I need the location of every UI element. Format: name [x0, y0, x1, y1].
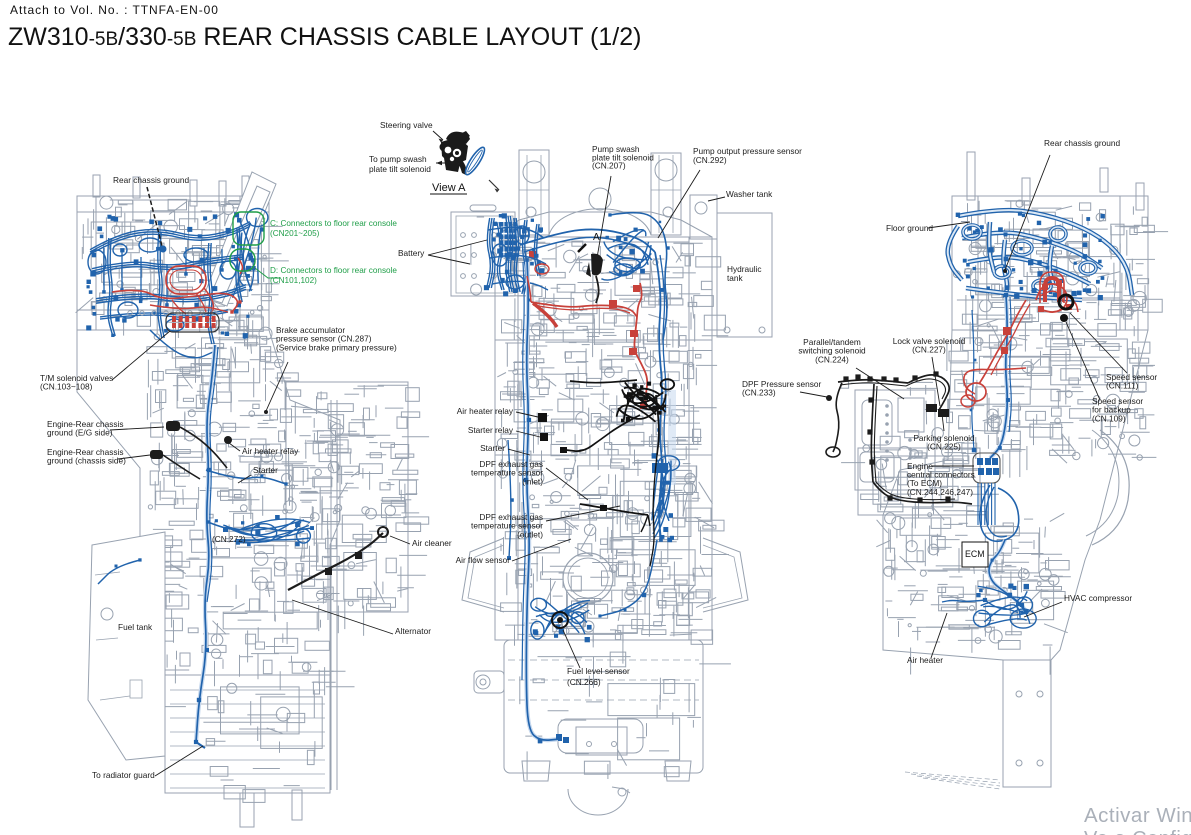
svg-text:(CN101,102): (CN101,102) — [270, 276, 317, 285]
svg-text:Rear chassis ground: Rear chassis ground — [1044, 138, 1120, 148]
svg-text:Floor ground: Floor ground — [886, 223, 933, 233]
svg-text:(CN.227): (CN.227) — [912, 345, 946, 355]
svg-text:Air flow sensor: Air flow sensor — [456, 555, 511, 565]
svg-text:(CN.233): (CN.233) — [742, 388, 776, 398]
svg-text:(CN.207): (CN.207) — [592, 161, 626, 171]
svg-text:tank: tank — [727, 273, 744, 283]
svg-text:View A: View A — [432, 182, 466, 194]
svg-text:Alternator: Alternator — [395, 626, 431, 636]
svg-text:Air cleaner: Air cleaner — [412, 538, 452, 548]
svg-text:Starter: Starter — [480, 443, 505, 453]
svg-text:To radiator guard: To radiator guard — [92, 770, 155, 780]
svg-text:Rear chassis ground: Rear chassis ground — [113, 175, 189, 185]
svg-text:Steering valve: Steering valve — [380, 120, 433, 130]
svg-text:Starter: Starter — [253, 465, 278, 475]
svg-text:(CN.272): (CN.272) — [212, 534, 246, 544]
svg-text:(CN.224): (CN.224) — [815, 354, 849, 364]
svg-text:(outlet): (outlet) — [517, 529, 543, 539]
svg-text:Fuel level sensor: Fuel level sensor — [567, 666, 630, 676]
svg-text:D: Connectors to floor rear co: D: Connectors to floor rear console — [270, 266, 397, 275]
svg-text:Washer tank: Washer tank — [726, 189, 773, 199]
svg-text:ECM: ECM — [965, 549, 985, 559]
svg-text:plate tilt solenoid: plate tilt solenoid — [369, 164, 431, 174]
svg-text:Starter relay: Starter relay — [468, 425, 514, 435]
svg-text:A: A — [593, 232, 600, 243]
svg-text:HVAC compressor: HVAC compressor — [1064, 593, 1132, 603]
svg-text:(Service brake primary pressur: (Service brake primary pressure) — [276, 342, 397, 352]
svg-text:(CN.244,246,247): (CN.244,246,247) — [907, 487, 973, 497]
svg-text:Attach to Vol. No. : TTNFA-EN-: Attach to Vol. No. : TTNFA-EN-00 — [10, 3, 219, 17]
svg-text:(CN.225): (CN.225) — [927, 442, 961, 452]
svg-text:Fuel tank: Fuel tank — [118, 622, 153, 632]
svg-text:Battery: Battery — [398, 248, 425, 258]
svg-text:Air heater relay: Air heater relay — [242, 446, 299, 456]
svg-text:(CN.109): (CN.109) — [1092, 413, 1126, 423]
svg-text:Ve a Configuraci: Ve a Configuraci — [1084, 828, 1191, 835]
svg-text:C: Connectors to floor rear co: C: Connectors to floor rear console — [270, 219, 397, 228]
svg-text:Air heater: Air heater — [907, 655, 943, 665]
svg-text:(inlet): (inlet) — [522, 476, 543, 486]
svg-text:Activar Windo: Activar Windo — [1084, 804, 1191, 827]
svg-text:(CN.111): (CN.111) — [1106, 381, 1139, 391]
svg-text:(CN.266): (CN.266) — [567, 677, 601, 687]
svg-text:ground (E/G side): ground (E/G side) — [47, 428, 113, 438]
svg-text:ground (chassis side): ground (chassis side) — [47, 456, 126, 466]
svg-text:(CN.103~108): (CN.103~108) — [40, 382, 93, 392]
svg-text:(CN.292): (CN.292) — [693, 155, 727, 165]
svg-text:To pump swash: To pump swash — [369, 154, 427, 164]
svg-text:Air heater relay: Air heater relay — [457, 406, 514, 416]
svg-text:(CN201~205): (CN201~205) — [270, 229, 320, 238]
